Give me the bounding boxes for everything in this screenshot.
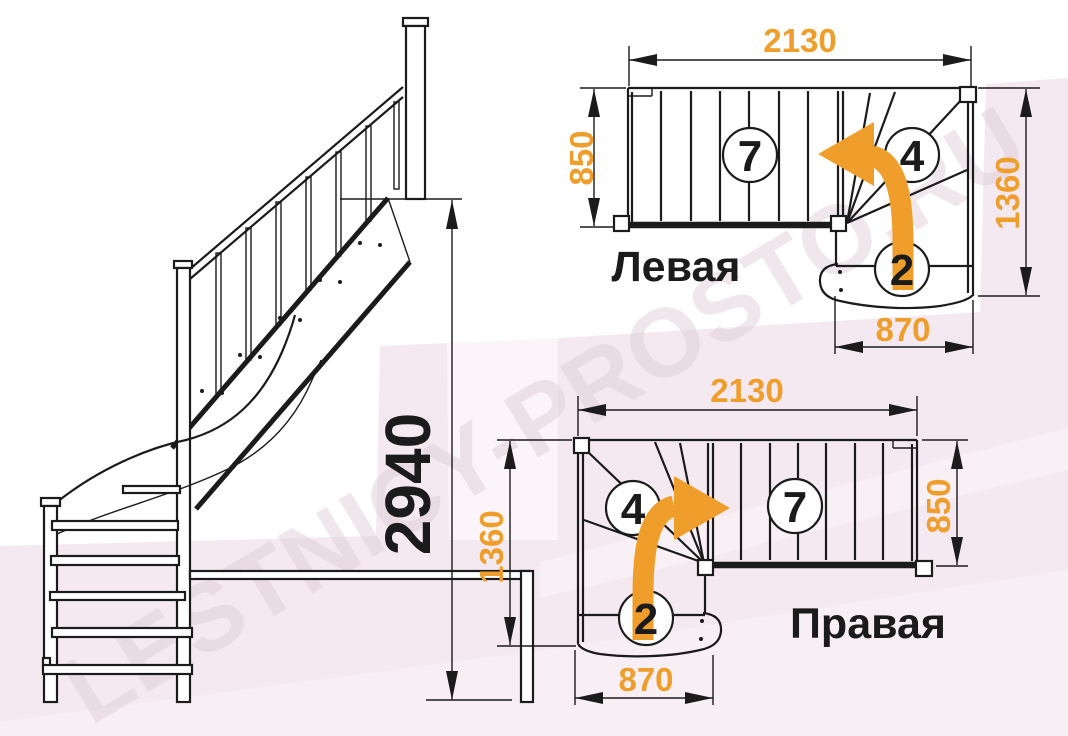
plan-left-title: Левая [612, 243, 741, 291]
straight-steps-count: 7 [783, 483, 807, 532]
dim-label: 2130 [763, 22, 836, 59]
dim-label: 850 [563, 130, 600, 185]
post-square [960, 87, 976, 102]
front-support [521, 571, 533, 702]
dim-2130-left-plan: 2130 [629, 22, 971, 86]
post-square [831, 216, 846, 231]
lower-steps-count: 2 [890, 246, 914, 295]
dim-label: 850 [920, 478, 957, 533]
lower-steps-count: 2 [634, 595, 658, 644]
bottom-post-cap [41, 498, 60, 506]
dim-850-left-plan: 850 [563, 88, 626, 227]
post-square [916, 561, 932, 576]
winder-steps-count: 4 [900, 132, 925, 181]
stringer-end-cut [388, 198, 410, 262]
dim-label: 870 [618, 661, 673, 698]
total-height-label: 2940 [372, 413, 444, 555]
straight-steps-count: 7 [738, 132, 762, 181]
post-square [698, 560, 713, 575]
dim-label: 1360 [473, 510, 510, 583]
dim-label: 1360 [989, 156, 1026, 229]
post-square [574, 438, 589, 453]
plan-right-title: Правая [790, 600, 946, 648]
post-square [614, 216, 629, 231]
top-post [406, 26, 425, 199]
dim-label: 870 [875, 311, 930, 348]
top-post-cap [403, 18, 428, 26]
drawing-svg: LESTNICY-PROSTO.RU [0, 0, 1068, 736]
balusters [216, 102, 399, 394]
winder-steps-count: 4 [621, 485, 646, 534]
dim-label: 2130 [710, 372, 783, 409]
stair-drawing-canvas: LESTNICY-PROSTO.RU [0, 0, 1068, 736]
